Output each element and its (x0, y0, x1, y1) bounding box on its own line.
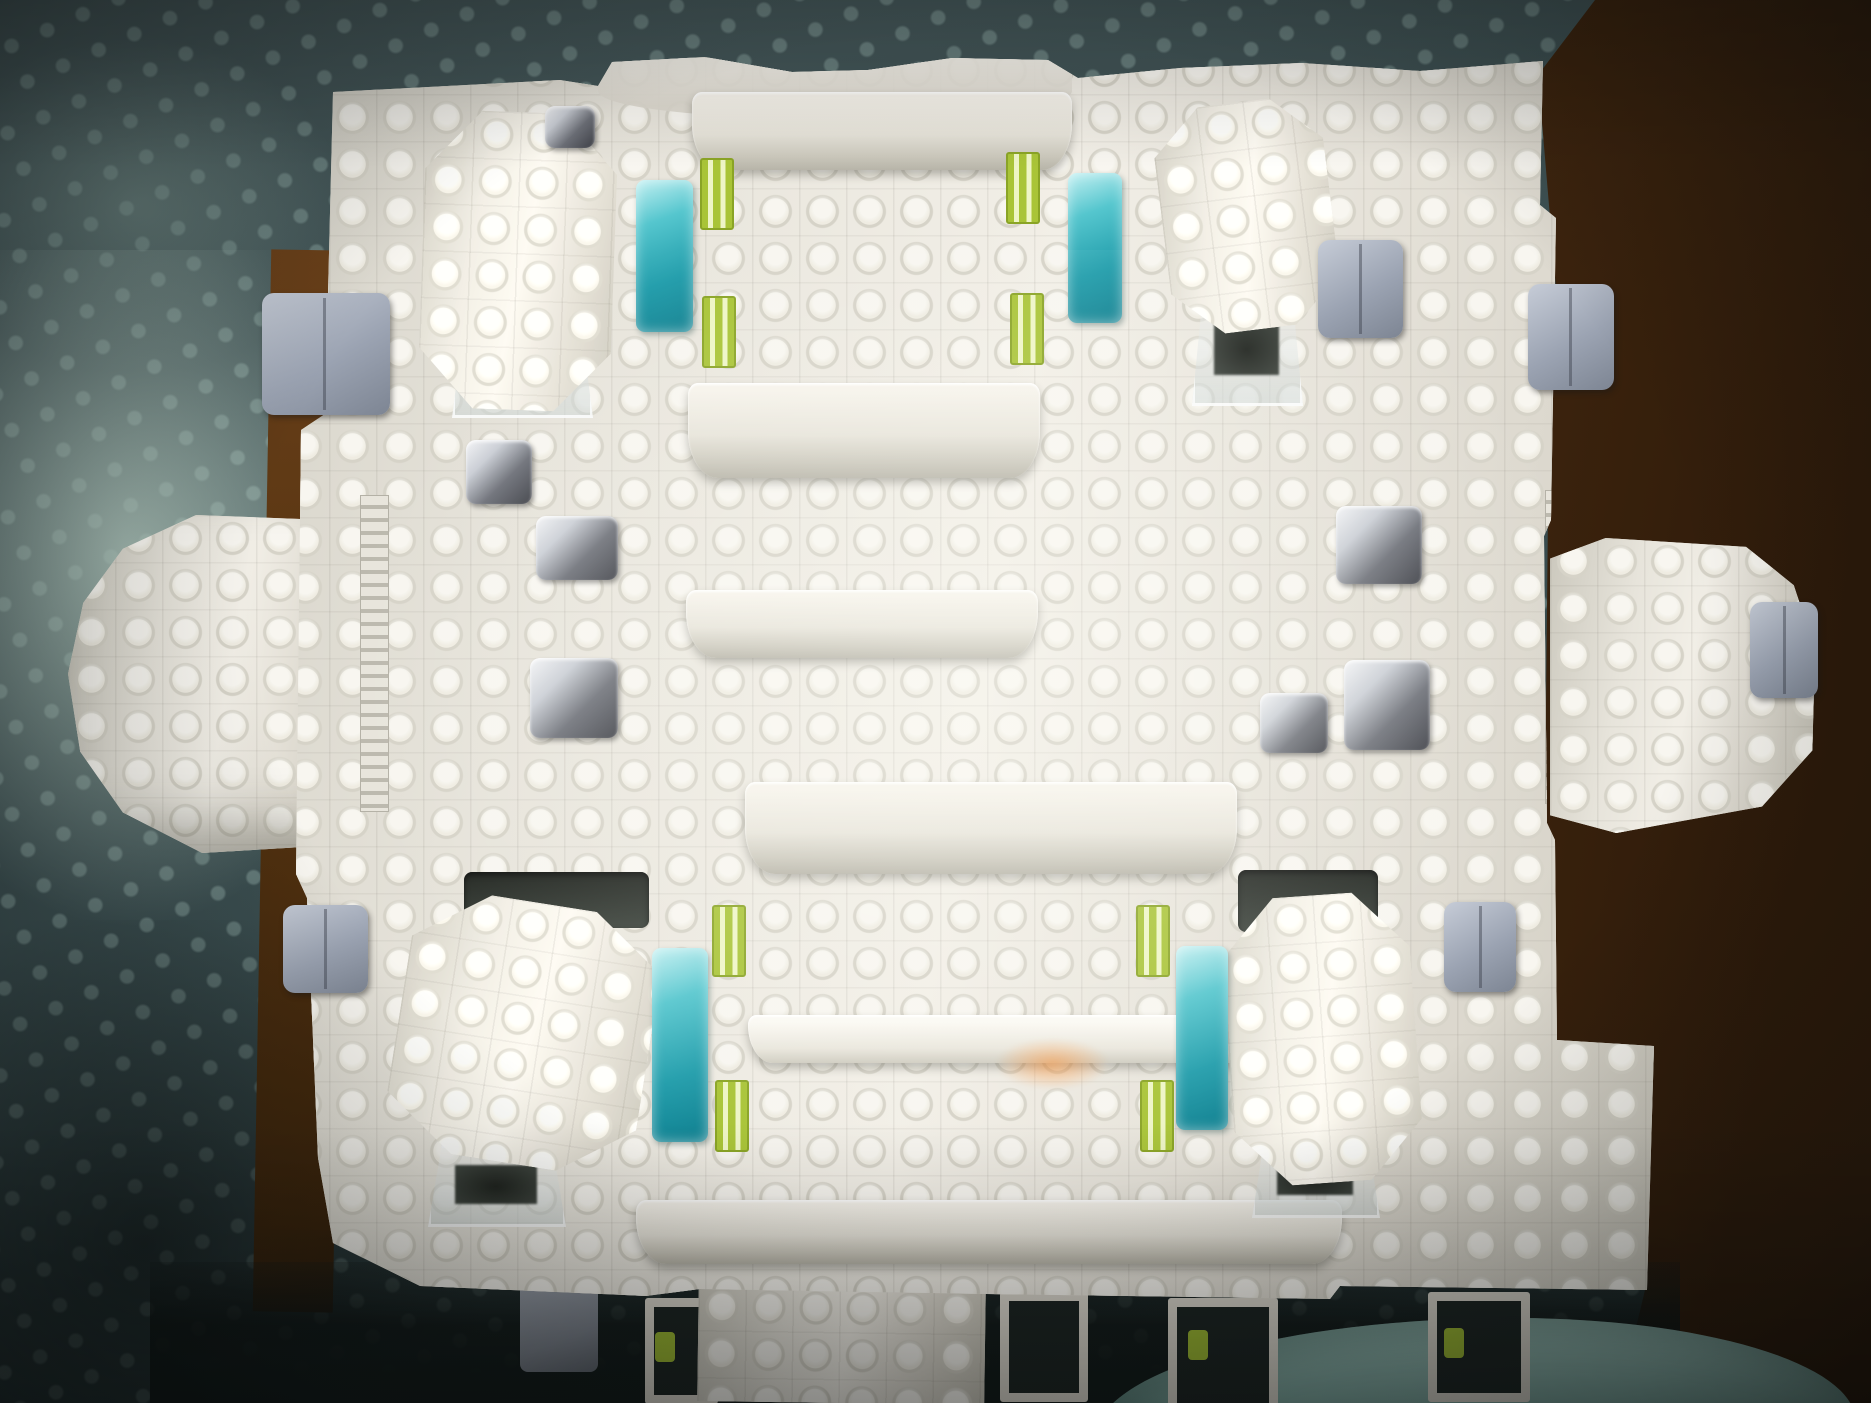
camera-flash-highlight (330, 250, 1580, 1200)
grey-connector (1444, 902, 1516, 992)
grey-connector (262, 293, 390, 415)
lime-piece (655, 1332, 675, 1362)
lime-piece (1188, 1330, 1208, 1360)
chrome-piece (545, 106, 595, 148)
grey-connector (1528, 284, 1614, 390)
white-frame-piece (1168, 1298, 1278, 1403)
lime-grille-tile (1006, 152, 1040, 224)
arched-brick-row (636, 1200, 1342, 1264)
grey-connector (1750, 602, 1818, 698)
lime-piece (1444, 1328, 1464, 1358)
lime-grille-tile (700, 158, 734, 230)
lego-construction-photo: Overhead photograph of a large white LEG… (0, 0, 1871, 1403)
warm-reflection (995, 1038, 1110, 1090)
bottom-extension-plate (697, 1283, 986, 1403)
white-frame-piece (1000, 1292, 1088, 1402)
grey-connector (283, 905, 368, 993)
grey-connector (1318, 240, 1403, 338)
